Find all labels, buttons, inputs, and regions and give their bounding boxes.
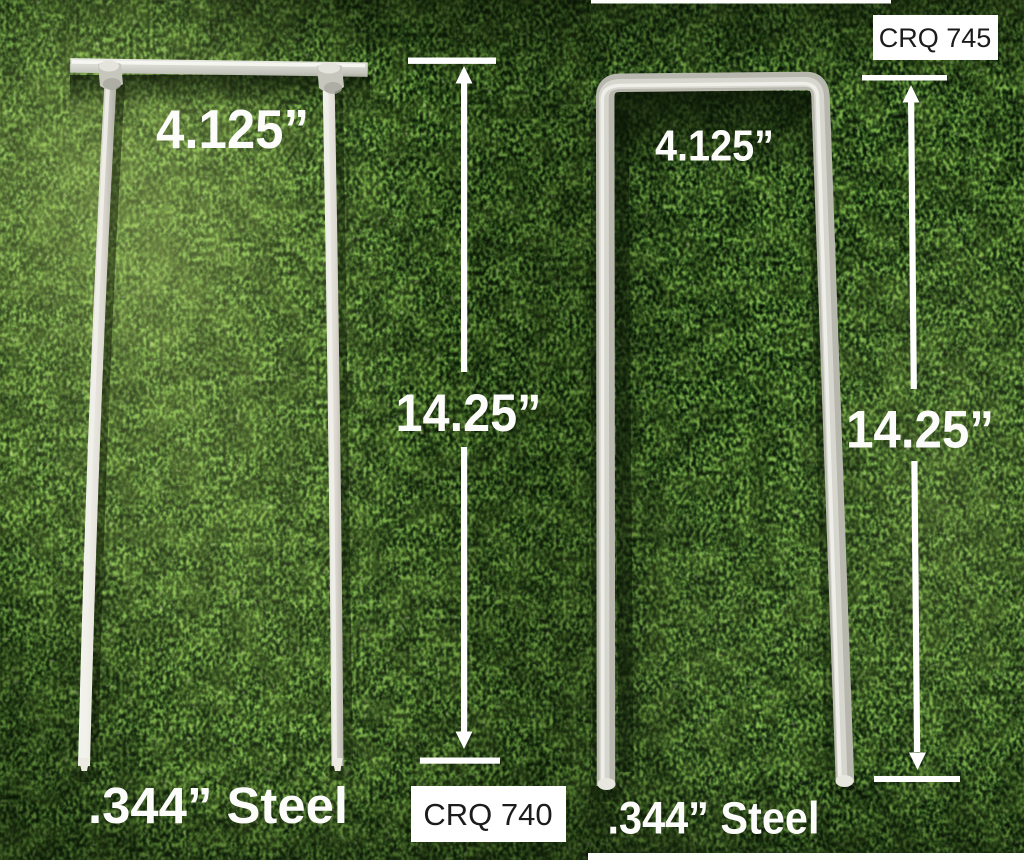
svg-text:CRQ 740: CRQ 740 [423, 797, 552, 832]
svg-text:.344” Steel: .344” Steel [88, 777, 348, 834]
svg-text:4.125”: 4.125” [156, 98, 309, 160]
svg-text:.344” Steel: .344” Steel [608, 793, 820, 844]
svg-text:14.25”: 14.25” [396, 384, 542, 443]
svg-text:CRQ 745: CRQ 745 [879, 23, 992, 53]
svg-text:4.125”: 4.125” [655, 122, 774, 171]
svg-text:14.25”: 14.25” [846, 401, 994, 460]
